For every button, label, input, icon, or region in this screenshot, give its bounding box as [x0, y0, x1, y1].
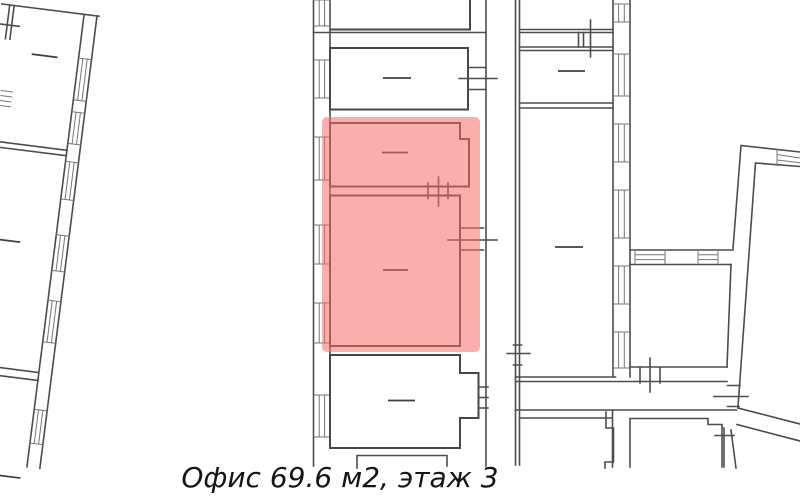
corridor-end-door [714, 386, 748, 407]
right-bottom-right-room [630, 419, 736, 469]
right-top-room [520, 20, 614, 57]
middle-top-room [314, 0, 487, 33]
floor-plan [0, 0, 800, 497]
corridor [516, 358, 737, 410]
middle-building [314, 0, 498, 468]
floor-plan-screenshot: Офис 69.6 м2, этаж 3 [0, 0, 800, 497]
middle-room-a [330, 48, 497, 110]
left-building-room-label-dashes [0, 52, 73, 478]
annex-diagonal-walls [737, 408, 800, 441]
left-building-interior-walls [0, 132, 67, 381]
annex-room [630, 250, 733, 367]
right-room-b [520, 51, 614, 109]
highlighted-office-area[interactable] [322, 117, 480, 352]
left-building [0, 0, 99, 481]
left-building-edge-windows [0, 90, 13, 183]
right-bottom-left-room [520, 410, 614, 468]
right-annex [630, 146, 800, 442]
right-big-room [507, 247, 616, 377]
right-building [507, 0, 737, 468]
left-building-entry-wall [0, 4, 22, 40]
middle-bottom-room [330, 355, 488, 448]
left-building-window-hatch [30, 58, 92, 445]
caption: Офис 69.6 м2, этаж 3 [181, 461, 498, 494]
right-window-hatch [613, 4, 630, 368]
